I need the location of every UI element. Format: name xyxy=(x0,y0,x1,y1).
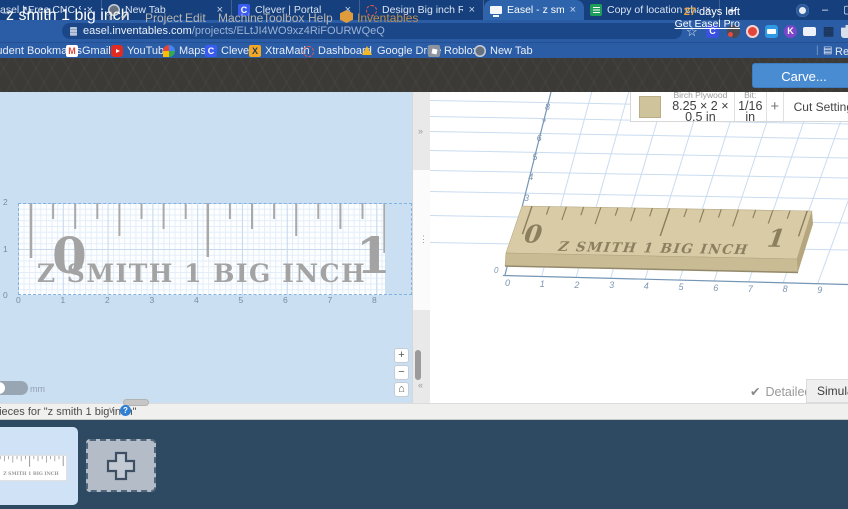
inventables-brand[interactable]: Inventables xyxy=(357,11,418,25)
apps-grid-icon[interactable]: ▦ xyxy=(822,25,835,38)
bookmark-new-tab[interactable]: New Tab xyxy=(474,43,533,59)
trial-days: 27 xyxy=(684,6,696,18)
tab-close-icon[interactable]: × xyxy=(467,4,477,16)
menu-project[interactable]: Project xyxy=(145,11,182,25)
reading-list-icon[interactable]: ▤ xyxy=(823,45,832,56)
dashboard-icon xyxy=(303,46,314,57)
material-size: 8.25 × 2 × 0.5 in xyxy=(667,101,734,123)
bookmark-gmail[interactable]: MGmail xyxy=(66,43,111,59)
bookmarks-bar: Student BookmarksMGmailYouTubeMapsCCleve… xyxy=(0,42,848,59)
panel-divider[interactable]: » ⋮ « xyxy=(412,92,430,403)
youtube-icon xyxy=(111,45,123,57)
ruler-text-3d: Z SMITH 1 BIG INCH xyxy=(556,239,751,258)
axis-label: 8 xyxy=(545,102,550,112)
axis-label: 6 xyxy=(537,133,542,143)
unit-toggle[interactable] xyxy=(0,381,28,395)
axis-label: 7 xyxy=(541,118,546,128)
cut-settings-button[interactable]: Cut Settings xyxy=(784,92,848,121)
pieces-collapse-icon[interactable]: ∨ xyxy=(108,405,115,416)
extension-icon[interactable]: K xyxy=(784,25,797,38)
reading-list-label[interactable]: Reading list xyxy=(835,46,848,58)
bookmark-maps[interactable]: Maps xyxy=(163,43,206,59)
axis-label: 8 xyxy=(783,284,788,294)
collapse-right-icon[interactable]: » xyxy=(418,126,423,136)
bookmark-label: Maps xyxy=(179,45,206,57)
add-bit-button[interactable]: + xyxy=(767,92,784,121)
trial-info: 27 days left Get Easel Pro xyxy=(630,5,740,30)
axis-label: 2 xyxy=(574,280,579,290)
tab-title: Easel - z smith 1 big inch xyxy=(507,4,564,16)
bit-section[interactable]: Bit: 1/16 in xyxy=(735,92,767,121)
maps-icon xyxy=(163,45,175,57)
axis-label: 3 xyxy=(609,280,614,290)
simulate-button[interactable]: Simulate xyxy=(806,379,848,403)
axis-label: 4 xyxy=(194,295,199,305)
axis-label: 1 xyxy=(540,279,545,289)
help-icon[interactable]: ? xyxy=(120,405,131,416)
globe-icon xyxy=(474,45,486,57)
menu-help[interactable]: Help xyxy=(308,11,333,25)
unit-label: mm xyxy=(30,384,45,394)
material-section[interactable]: Birch Plywood 8.25 × 2 × 0.5 in xyxy=(631,92,735,121)
selection-box[interactable] xyxy=(18,203,412,295)
pieces-title: pieces for "z smith 1 big inch" xyxy=(0,406,137,418)
origin-label: 0 xyxy=(494,266,498,275)
cast-extension-icon[interactable] xyxy=(803,27,816,36)
bit-value: 1/16 in xyxy=(735,101,766,123)
tab-close-icon[interactable]: × xyxy=(568,4,578,16)
axis-label: 6 xyxy=(713,283,718,293)
zoom-in-button[interactable]: + xyxy=(394,348,409,363)
axis-label: 2 xyxy=(105,295,110,305)
easel-header xyxy=(0,58,848,92)
address-bar[interactable]: easel.inventables.com/projects/ELtJI4WO9… xyxy=(62,23,682,39)
axis-label: 6 xyxy=(283,295,288,305)
add-piece-button[interactable] xyxy=(86,439,156,492)
axis-label: 0 xyxy=(3,290,8,300)
preview-3d[interactable]: 0 1 Z SMITH 1 BIG INCH 0123456789 345678… xyxy=(430,92,848,403)
monitor-favicon-icon xyxy=(490,6,502,14)
zoom-home-button[interactable]: ⌂ xyxy=(394,382,409,397)
profile-avatar-icon[interactable] xyxy=(796,4,809,17)
piece-thumbnail-selected[interactable]: Z SMITH 1 BIG INCH xyxy=(0,427,78,505)
saved-check-icon: ✔ xyxy=(120,9,130,23)
piece-preview: Z SMITH 1 BIG INCH xyxy=(0,456,66,480)
material-bar: Birch Plywood 8.25 × 2 × 0.5 in Bit: 1/1… xyxy=(630,92,848,122)
extension-icon[interactable] xyxy=(765,25,778,38)
axis-label: 3 xyxy=(150,295,155,305)
clever-icon: C xyxy=(205,45,217,57)
pieces-panel: Z SMITH 1 BIG INCH xyxy=(0,420,848,509)
maximize-window-icon[interactable]: ▢ xyxy=(843,1,848,19)
get-easel-pro-link[interactable]: Get Easel Pro xyxy=(630,18,740,30)
svg-text:Z SMITH 1 BIG INCH: Z SMITH 1 BIG INCH xyxy=(3,471,59,477)
menu-edit[interactable]: Edit xyxy=(185,11,206,25)
axis-label: 1 xyxy=(61,295,66,305)
minimize-window-icon[interactable]: – xyxy=(822,1,828,19)
scrollbar-thumb[interactable] xyxy=(415,350,421,380)
bookmark-label: Gmail xyxy=(82,45,111,57)
zoom-out-button[interactable]: − xyxy=(394,365,409,380)
material-swatch-icon[interactable] xyxy=(639,96,661,118)
piece-preview-image: Z SMITH 1 BIG INCH xyxy=(0,456,66,480)
axis-label: 0 xyxy=(505,278,510,288)
axis-label: 0 xyxy=(16,295,21,305)
bookmark-label: New Tab xyxy=(490,45,533,57)
menu-machine[interactable]: Machine xyxy=(218,11,263,25)
axis-label: 2 xyxy=(3,197,8,207)
axis-label: 5 xyxy=(532,152,537,162)
plus-icon xyxy=(88,441,154,490)
collapse-left-icon[interactable]: « xyxy=(418,380,423,390)
axis-label: 5 xyxy=(239,295,244,305)
url-text: easel.inventables.com/projects/ELtJI4WO9… xyxy=(83,25,385,37)
bookmark-xtramath[interactable]: XXtraMath xyxy=(249,43,310,59)
page-info-icon[interactable] xyxy=(70,27,77,36)
xtramath-icon: X xyxy=(249,45,261,57)
roblox-icon xyxy=(428,45,440,57)
design-canvas-2d[interactable]: 0 1 Z SMITH 1 BIG INCH 012345678 210 mm … xyxy=(0,92,412,403)
axis-label: 5 xyxy=(679,282,684,292)
detailed-toggle[interactable]: ✔Detailed xyxy=(750,384,811,399)
divider: | xyxy=(816,45,819,56)
check-icon: ✔ xyxy=(750,385,760,399)
axis-label: 8 xyxy=(372,295,377,305)
bookmark-roblox[interactable]: Roblox xyxy=(428,43,478,59)
carve-button[interactable]: Carve... xyxy=(752,63,848,88)
browser-window: Easel | Free CNC Software |×New Tab×CCle… xyxy=(0,0,848,509)
axis-label: 9 xyxy=(817,285,822,295)
bookmark-clever[interactable]: CClever xyxy=(205,43,253,59)
menu-toolbox[interactable]: Toolbox xyxy=(263,11,304,25)
bookmark-youtube[interactable]: YouTube xyxy=(111,43,170,59)
divider-handle-track[interactable]: ⋮ xyxy=(413,170,431,310)
axis-label: 4 xyxy=(644,281,649,291)
tab-active[interactable]: Easel - z smith 1 big inch× xyxy=(484,0,584,20)
unit-toggle-knob[interactable] xyxy=(0,382,5,394)
preview-3d-scene: 0 1 Z SMITH 1 BIG INCH xyxy=(430,92,848,403)
sheets-favicon-icon xyxy=(590,4,602,16)
axis-label: 1 xyxy=(3,244,8,254)
drag-dots-icon[interactable]: ⋮ xyxy=(419,234,428,245)
axis-label: 7 xyxy=(328,295,333,305)
axis-label: 3 xyxy=(524,193,529,203)
trial-days-label: days left xyxy=(696,6,740,18)
favorite-star-icon[interactable]: ☆ xyxy=(106,9,117,23)
extension-icon[interactable] xyxy=(746,25,759,38)
gmail-icon: M xyxy=(66,45,78,57)
drive-icon xyxy=(361,45,373,57)
axis-label: 7 xyxy=(748,284,753,294)
axis-label: 4 xyxy=(528,172,533,182)
